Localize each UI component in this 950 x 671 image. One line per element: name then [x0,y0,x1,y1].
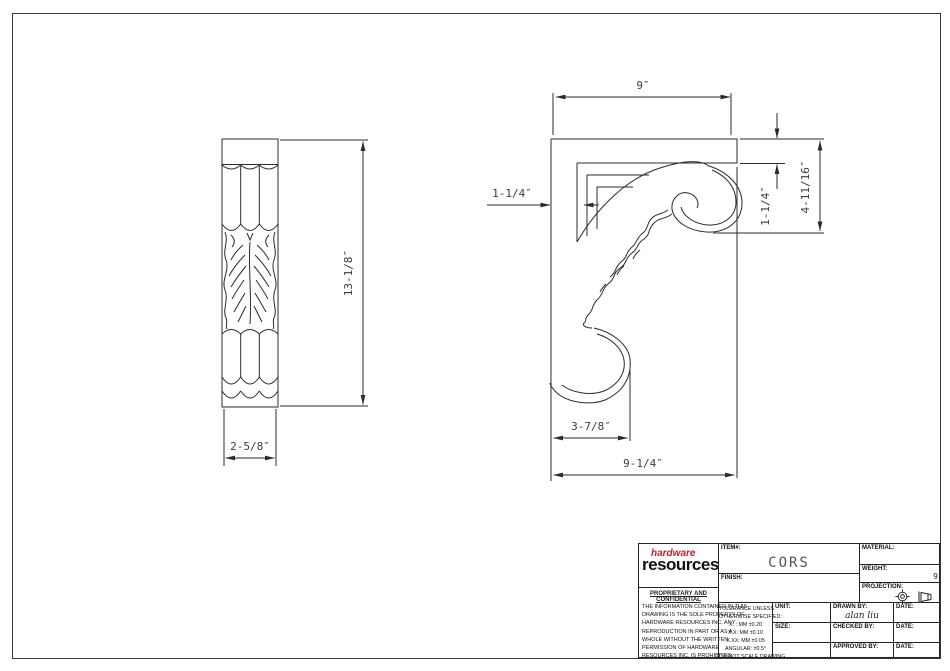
date-cell-checked: DATE: [893,622,941,642]
date-cell-drawn: DATE: [893,602,941,622]
proprietary-line: WHOLE WITHOUT THE WRITTEN [639,636,718,644]
checked-by-label: CHECKED BY: [831,623,893,630]
finish-label: FINISH: [719,574,859,581]
date-label: DATE: [894,623,941,630]
dim-side-top-length: 9″ [636,79,649,92]
front-view-dimensions [224,140,368,466]
drawn-by-signature: alan liu [831,611,893,621]
approved-by-cell: APPROVED BY: [830,642,893,659]
date-label: DATE: [894,643,941,650]
tolerance-line: X.XX: MM ±0.05 [719,637,772,645]
approved-by-label: APPROVED BY: [831,643,893,650]
tolerance-line: ANGULAR: ±0.5° [719,645,772,653]
proprietary-line: THE INFORMATION CONTAINED IN THIS [639,603,718,611]
proprietary-line: DRAWING IS THE SOLE PROPERTY OF [639,611,718,619]
tolerance-line: OTHERWISE SPECIFIED: [719,613,772,621]
logo-cell: hardware resources [639,544,718,587]
front-view [222,139,278,407]
weight-cell: WEIGHT: 9 [859,564,941,582]
item-label: ITEM#: [719,544,859,551]
date-cell-approved: DATE: [893,642,941,659]
unit-cell: UNIT: [772,602,830,622]
weight-value: 9 [933,572,938,581]
size-cell: SIZE: [772,622,830,642]
dim-side-foot-depth: 3-7/8″ [571,420,611,433]
title-block: hardware resources PROPRIETARY AND CONFI… [638,543,940,658]
tolerance-line: X. : MM ±0.20 [719,621,772,629]
empty-cell [772,642,830,659]
finish-cell: FINISH: [718,573,859,602]
proprietary-cell: PROPRIETARY AND CONFIDENTIAL THE INFORMA… [639,587,718,659]
proprietary-line: REPRODUCTION IN PART OR AS A [639,628,718,636]
projection-cell: PROJECTION: [859,582,941,602]
item-cell: ITEM#: CORS [718,544,859,573]
tolerance-line: DO NOT SCALE DRAWING [719,653,772,661]
dim-side-bar-thickness: 1-1/4″ [759,186,772,226]
dim-side-overall-depth: 9-1/4″ [623,457,663,470]
dim-front-width: 2-5/8″ [230,440,270,453]
weight-label: WEIGHT: [860,565,941,572]
proprietary-line: RESOURCES INC. IS PROHIBITED. [639,652,718,660]
proprietary-line: HARDWARE RESOURCES INC. ANY [639,619,718,627]
date-label: DATE: [894,603,941,610]
drawn-by-cell: DRAWN BY: alan liu [830,602,893,622]
checked-by-cell: CHECKED BY: [830,622,893,642]
proprietary-line: PERMISSION OF HARDWARE [639,644,718,652]
dim-front-height: 13-1/8″ [342,250,355,296]
drawing-sheet: 13-1/8″ 2-5/8″ [0,0,950,671]
logo-resources-text: resources [642,555,719,575]
material-label: MATERIAL: [860,544,941,551]
tolerance-line: TOLERANCE UNLESS [719,605,772,613]
material-cell: MATERIAL: [859,544,941,564]
unit-label: UNIT: [773,603,830,610]
side-view-dimensions [487,93,824,475]
item-value: CORS [719,555,859,571]
tolerance-line: X.X: MM ±0.10 [719,629,772,637]
drawn-by-label: DRAWN BY: [831,603,893,610]
tolerance-cell: TOLERANCE UNLESS OTHERWISE SPECIFIED: X.… [718,602,772,659]
proprietary-title: PROPRIETARY AND CONFIDENTIAL [639,591,718,603]
dim-side-back-thickness: 1-1/4″ [492,187,532,200]
dim-side-upper-drop: 4-11/16″ [799,161,812,214]
size-label: SIZE: [773,623,830,630]
